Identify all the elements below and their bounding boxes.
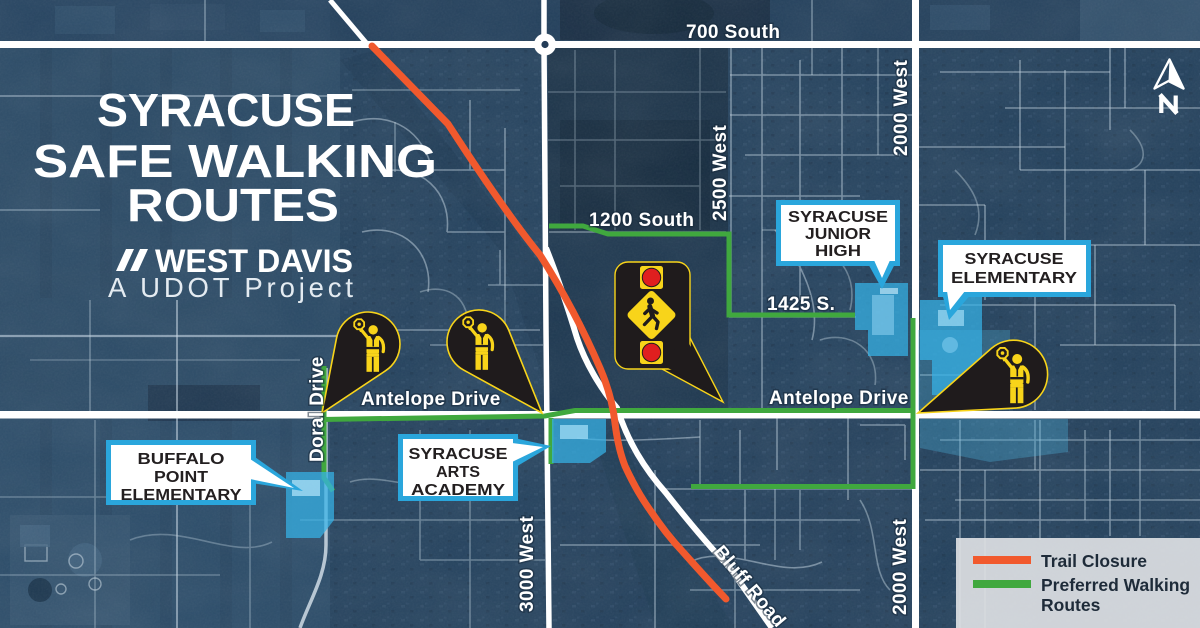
svg-text:2000 West: 2000 West — [891, 60, 912, 156]
svg-text:3000 West: 3000 West — [517, 516, 538, 612]
svg-text:SYRACUSE: SYRACUSE — [965, 251, 1064, 268]
svg-text:Routes: Routes — [1041, 595, 1101, 615]
svg-text:JUNIOR: JUNIOR — [805, 226, 871, 243]
svg-text:BUFFALO: BUFFALO — [138, 451, 225, 468]
svg-text:ELEMENTARY: ELEMENTARY — [121, 487, 242, 504]
svg-text:SYRACUSE: SYRACUSE — [788, 209, 888, 226]
svg-text:1425 S.: 1425 S. — [767, 294, 835, 315]
svg-text:HIGH: HIGH — [815, 243, 861, 260]
svg-text:POINT: POINT — [154, 469, 208, 486]
svg-text:Antelope Drive: Antelope Drive — [769, 388, 909, 409]
svg-text:ROUTES: ROUTES — [127, 179, 339, 231]
svg-text:SYRACUSE: SYRACUSE — [409, 446, 508, 463]
svg-text:Doral Drive: Doral Drive — [307, 356, 328, 462]
svg-text:700 South: 700 South — [686, 22, 780, 43]
svg-text:Antelope Drive: Antelope Drive — [361, 389, 501, 410]
svg-text:2500 West: 2500 West — [710, 125, 731, 221]
svg-text:ELEMENTARY: ELEMENTARY — [951, 270, 1077, 287]
svg-text:Trail Closure: Trail Closure — [1041, 551, 1147, 571]
svg-text:1200 South: 1200 South — [589, 210, 694, 231]
svg-text:ACADEMY: ACADEMY — [411, 482, 505, 499]
svg-text:Preferred Walking: Preferred Walking — [1041, 575, 1190, 595]
svg-text:ARTS: ARTS — [436, 464, 480, 481]
svg-text:SYRACUSE: SYRACUSE — [97, 84, 355, 136]
svg-text:2000 West: 2000 West — [890, 519, 911, 615]
